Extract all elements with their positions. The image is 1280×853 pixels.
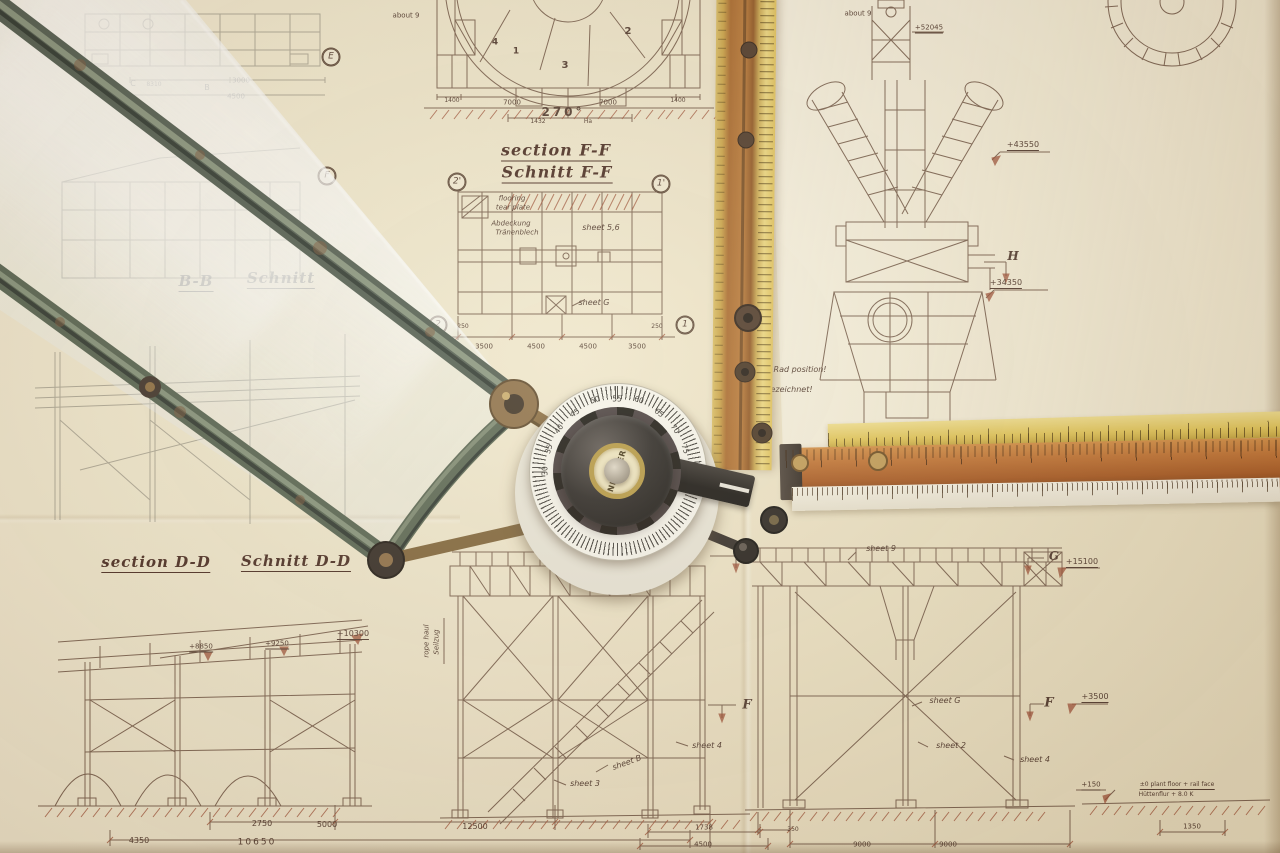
protractor-head: 30 35 40 45 50 55 60 65 70 75 NESTLER [509, 363, 725, 579]
photo-drafting-table: { "scene": { "description": "Photograph … [0, 0, 1280, 853]
lower-arm [0, 257, 390, 566]
center-dome [604, 458, 630, 484]
dial-number: 30 [541, 466, 549, 476]
dial-number: 55 [612, 395, 622, 403]
dial-number: 75 [680, 443, 690, 454]
ruler-clamp-knobs [734, 42, 887, 563]
pointer-white-index [719, 483, 749, 494]
